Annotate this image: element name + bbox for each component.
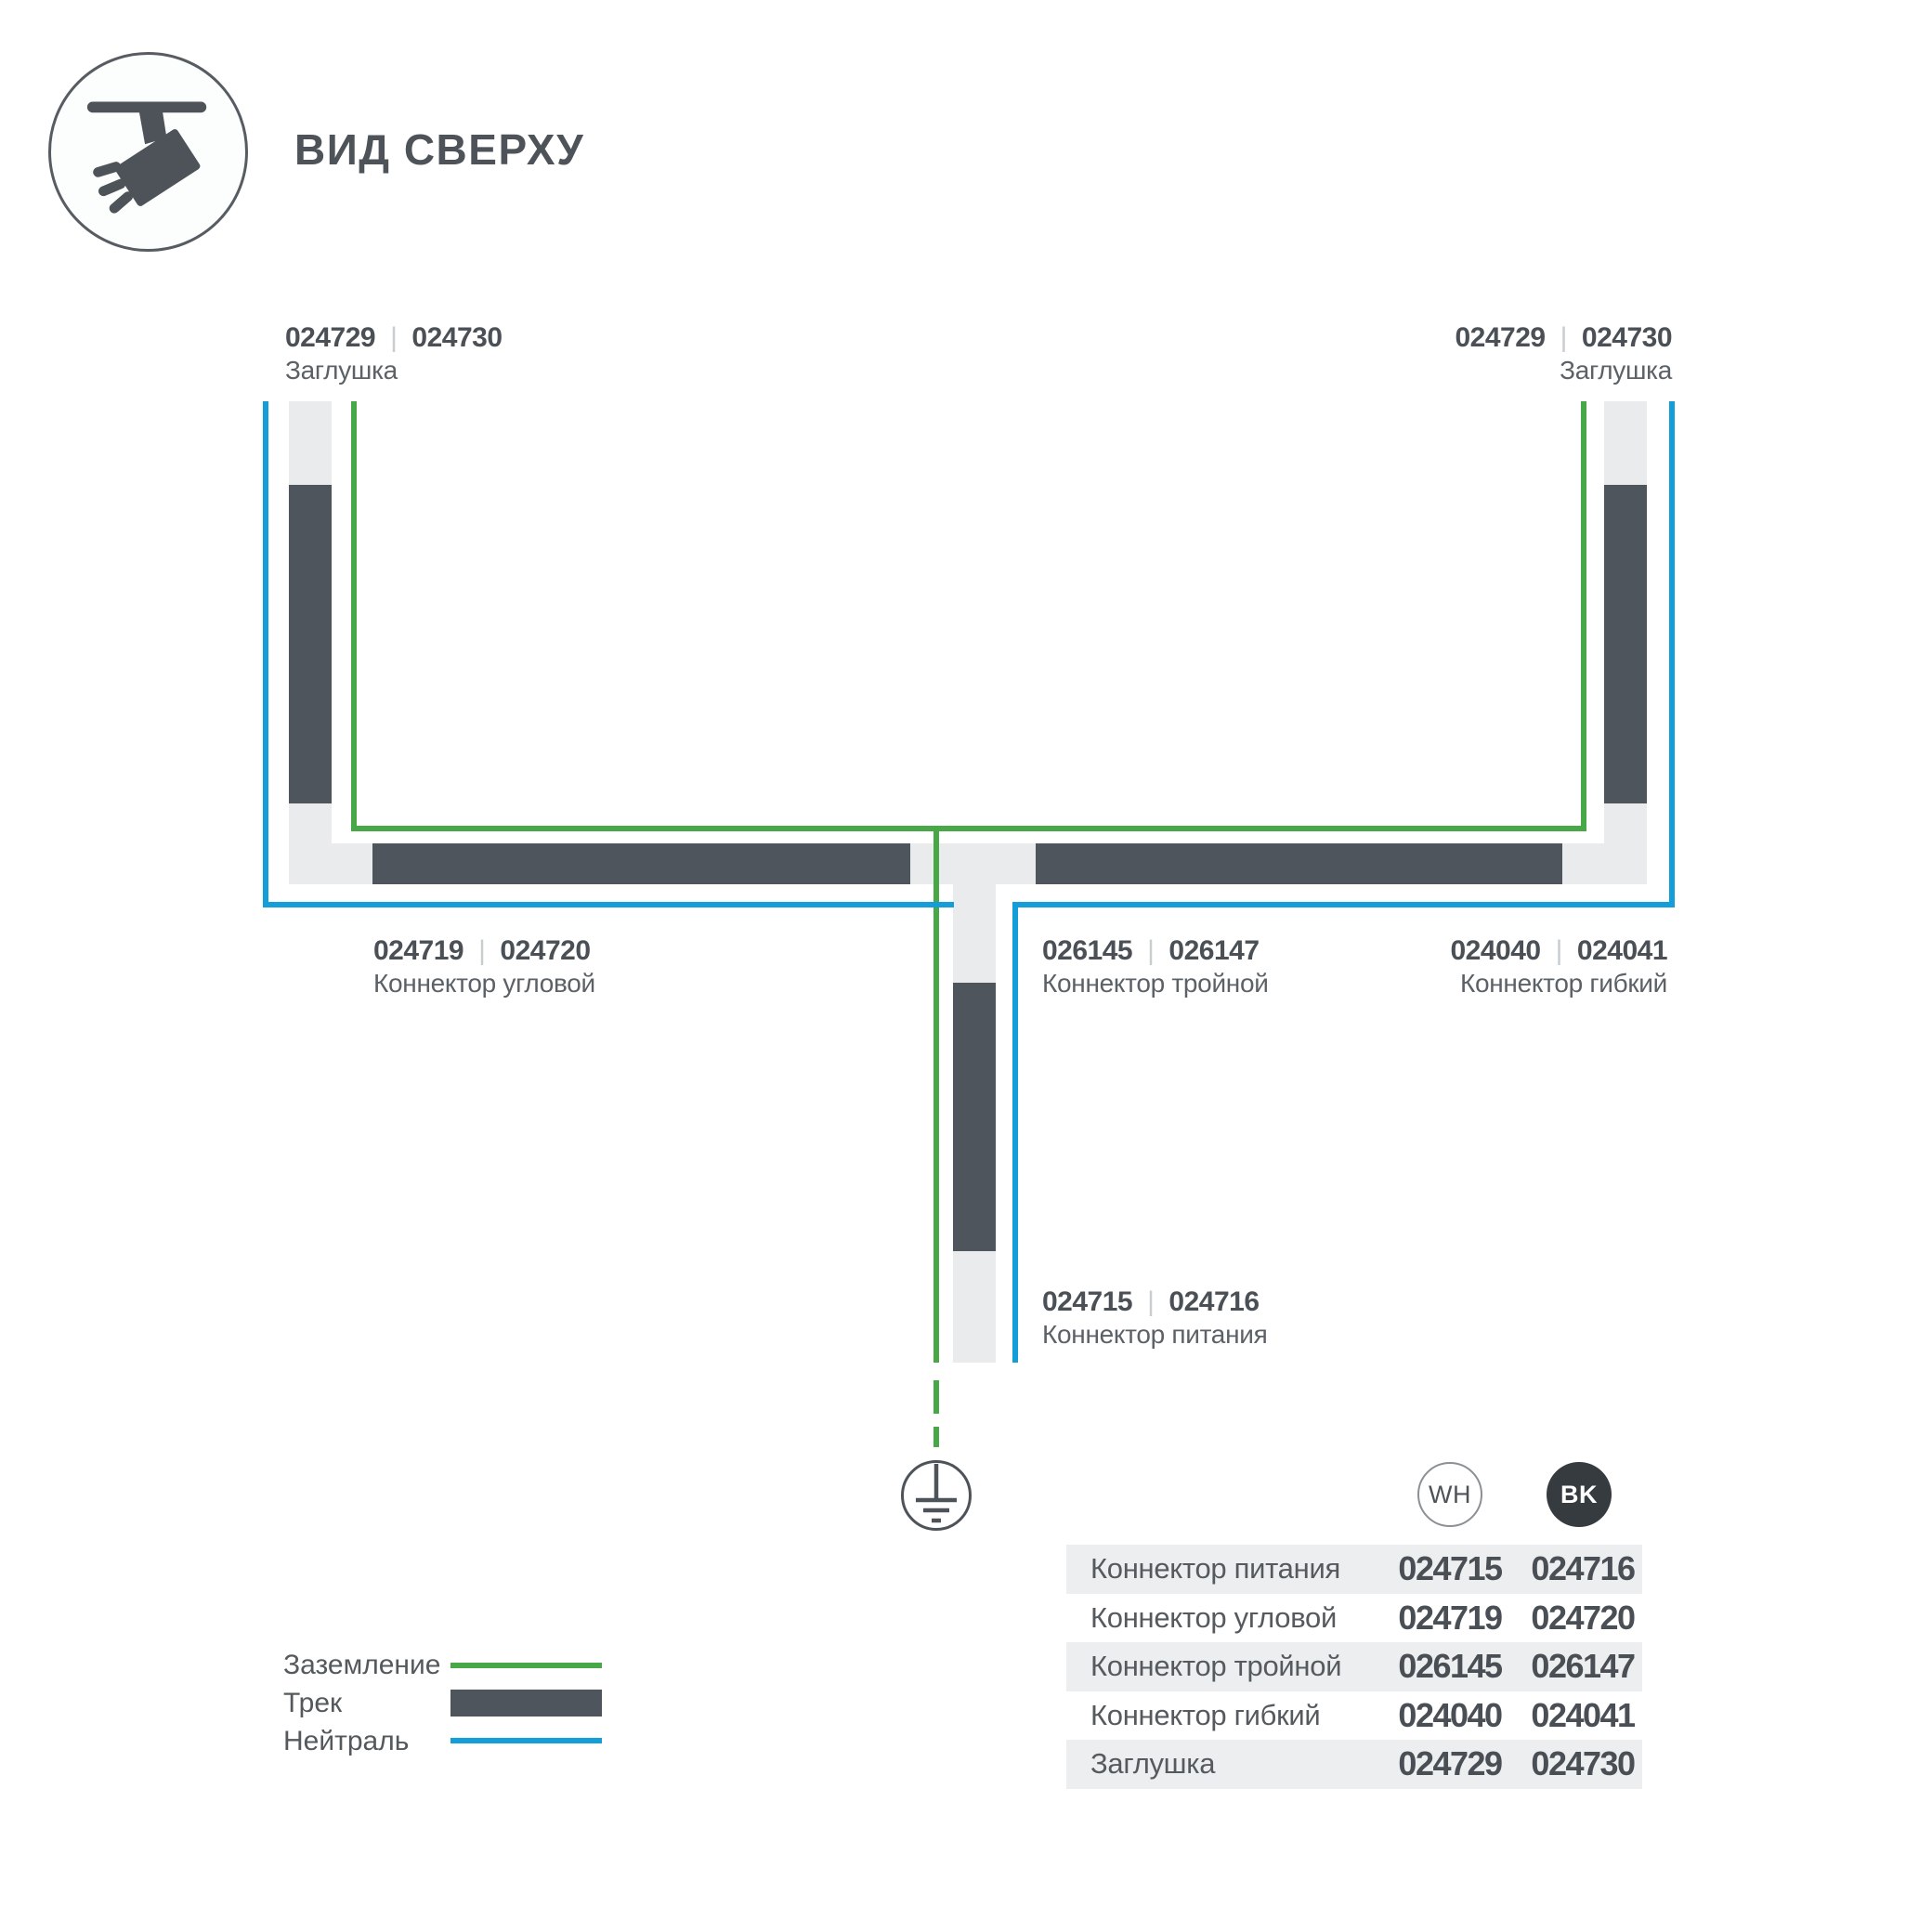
part-codes: 024040|024041	[1450, 934, 1667, 968]
corner-connector-right-horizontal	[1562, 843, 1604, 884]
part-name: Коннектор гибкий	[1450, 968, 1667, 999]
row-part-name: Заглушка	[1066, 1747, 1215, 1781]
power-connector	[953, 1251, 996, 1363]
label-end-cap-right: 024729|024730 Заглушка	[1455, 321, 1672, 386]
corner-connector-right-vertical	[1604, 803, 1647, 884]
color-badge-white: WH	[1417, 1462, 1482, 1527]
neutral-wire-right-vertical	[1669, 401, 1675, 907]
triple-connector-stem	[953, 884, 996, 983]
part-name: Коннектор питания	[1042, 1319, 1267, 1351]
neutral-wire-center-vertical	[1012, 902, 1018, 1363]
ground-wire-dash	[933, 1380, 939, 1414]
legend-neutral-label: Нейтраль	[283, 1727, 409, 1756]
legend-ground-label: Заземление	[283, 1651, 440, 1680]
row-code-wh: 024040	[1390, 1696, 1510, 1735]
legend-ground-swatch	[450, 1663, 602, 1668]
label-corner-connector: 024719|024720 Коннектор угловой	[373, 934, 595, 999]
earth-ground-symbol	[901, 1460, 972, 1531]
row-code-bk: 026147	[1522, 1647, 1643, 1686]
code-divider: |	[1132, 935, 1168, 966]
part-codes: 024729|024730	[1455, 321, 1672, 355]
triple-connector-body	[910, 843, 1036, 884]
row-code-wh: 024719	[1390, 1599, 1510, 1638]
track-right-vertical	[1604, 485, 1647, 803]
code-divider: |	[1132, 1286, 1168, 1317]
part-codes: 024719|024720	[373, 934, 595, 968]
part-name: Заглушка	[285, 355, 503, 386]
part-codes: 026145|026147	[1042, 934, 1269, 968]
code-divider: |	[1546, 322, 1582, 353]
end-cap-left	[289, 401, 332, 485]
table-row: Коннектор питания 024715 024716	[1066, 1545, 1642, 1594]
page-title: ВИД СВЕРХУ	[294, 128, 584, 171]
part-name: Заглушка	[1455, 355, 1672, 386]
row-code-bk: 024720	[1522, 1599, 1643, 1638]
row-code-bk: 024730	[1522, 1744, 1643, 1783]
end-cap-right	[1604, 401, 1647, 485]
legend-neutral-swatch	[450, 1738, 602, 1743]
neutral-wire-horizontal-left	[263, 902, 954, 907]
table-row: Коннектор угловой 024719 024720	[1066, 1594, 1642, 1643]
part-name: Коннектор тройной	[1042, 968, 1269, 999]
earth-ground-glyph	[904, 1463, 969, 1528]
label-triple-connector: 026145|026147 Коннектор тройной	[1042, 934, 1269, 999]
legend-track-swatch	[450, 1690, 602, 1717]
ground-wire-left-vertical	[351, 401, 357, 831]
neutral-wire-left-vertical	[263, 401, 268, 907]
row-code-wh: 024715	[1390, 1549, 1510, 1588]
row-part-name: Коннектор угловой	[1066, 1601, 1337, 1635]
row-code-wh: 026145	[1390, 1647, 1510, 1686]
row-part-name: Коннектор питания	[1066, 1552, 1340, 1586]
label-power-connector: 024715|024716 Коннектор питания	[1042, 1286, 1267, 1351]
label-end-cap-left: 024729|024730 Заглушка	[285, 321, 503, 386]
ground-wire-right-vertical	[1581, 401, 1586, 831]
track-spotlight-icon	[51, 55, 245, 249]
track-horizontal-right	[1036, 843, 1562, 884]
row-code-wh: 024729	[1390, 1744, 1510, 1783]
ground-wire-horizontal	[351, 826, 1586, 831]
row-code-bk: 024716	[1522, 1549, 1643, 1588]
row-part-name: Коннектор тройной	[1066, 1650, 1341, 1683]
part-number-table: Коннектор питания 024715 024716 Коннекто…	[1066, 1545, 1642, 1789]
track-center-stem	[953, 983, 996, 1251]
corner-connector-left-vertical	[289, 803, 332, 884]
page: { "header": { "title": "ВИД СВЕРХУ" }, "…	[0, 0, 1932, 1932]
part-codes: 024729|024730	[285, 321, 503, 355]
table-row: Заглушка 024729 024730	[1066, 1740, 1642, 1789]
row-part-name: Коннектор гибкий	[1066, 1699, 1320, 1732]
code-divider: |	[375, 322, 411, 353]
row-code-bk: 024041	[1522, 1696, 1643, 1735]
table-row: Коннектор гибкий 024040 024041	[1066, 1691, 1642, 1741]
part-codes: 024715|024716	[1042, 1286, 1267, 1319]
neutral-wire-horizontal-right	[1015, 902, 1675, 907]
ground-wire-dash	[933, 1427, 939, 1447]
color-badge-black: BK	[1547, 1462, 1612, 1527]
part-name: Коннектор угловой	[373, 968, 595, 999]
legend-track-label: Трек	[283, 1689, 342, 1718]
track-left-vertical	[289, 485, 332, 803]
code-divider: |	[1541, 935, 1577, 966]
label-flexible-connector: 024040|024041 Коннектор гибкий	[1450, 934, 1667, 999]
corner-connector-left-horizontal	[332, 843, 372, 884]
table-row: Коннектор тройной 026145 026147	[1066, 1642, 1642, 1691]
track-horizontal-left	[372, 843, 910, 884]
top-view-icon-circle	[48, 52, 248, 252]
code-divider: |	[463, 935, 500, 966]
